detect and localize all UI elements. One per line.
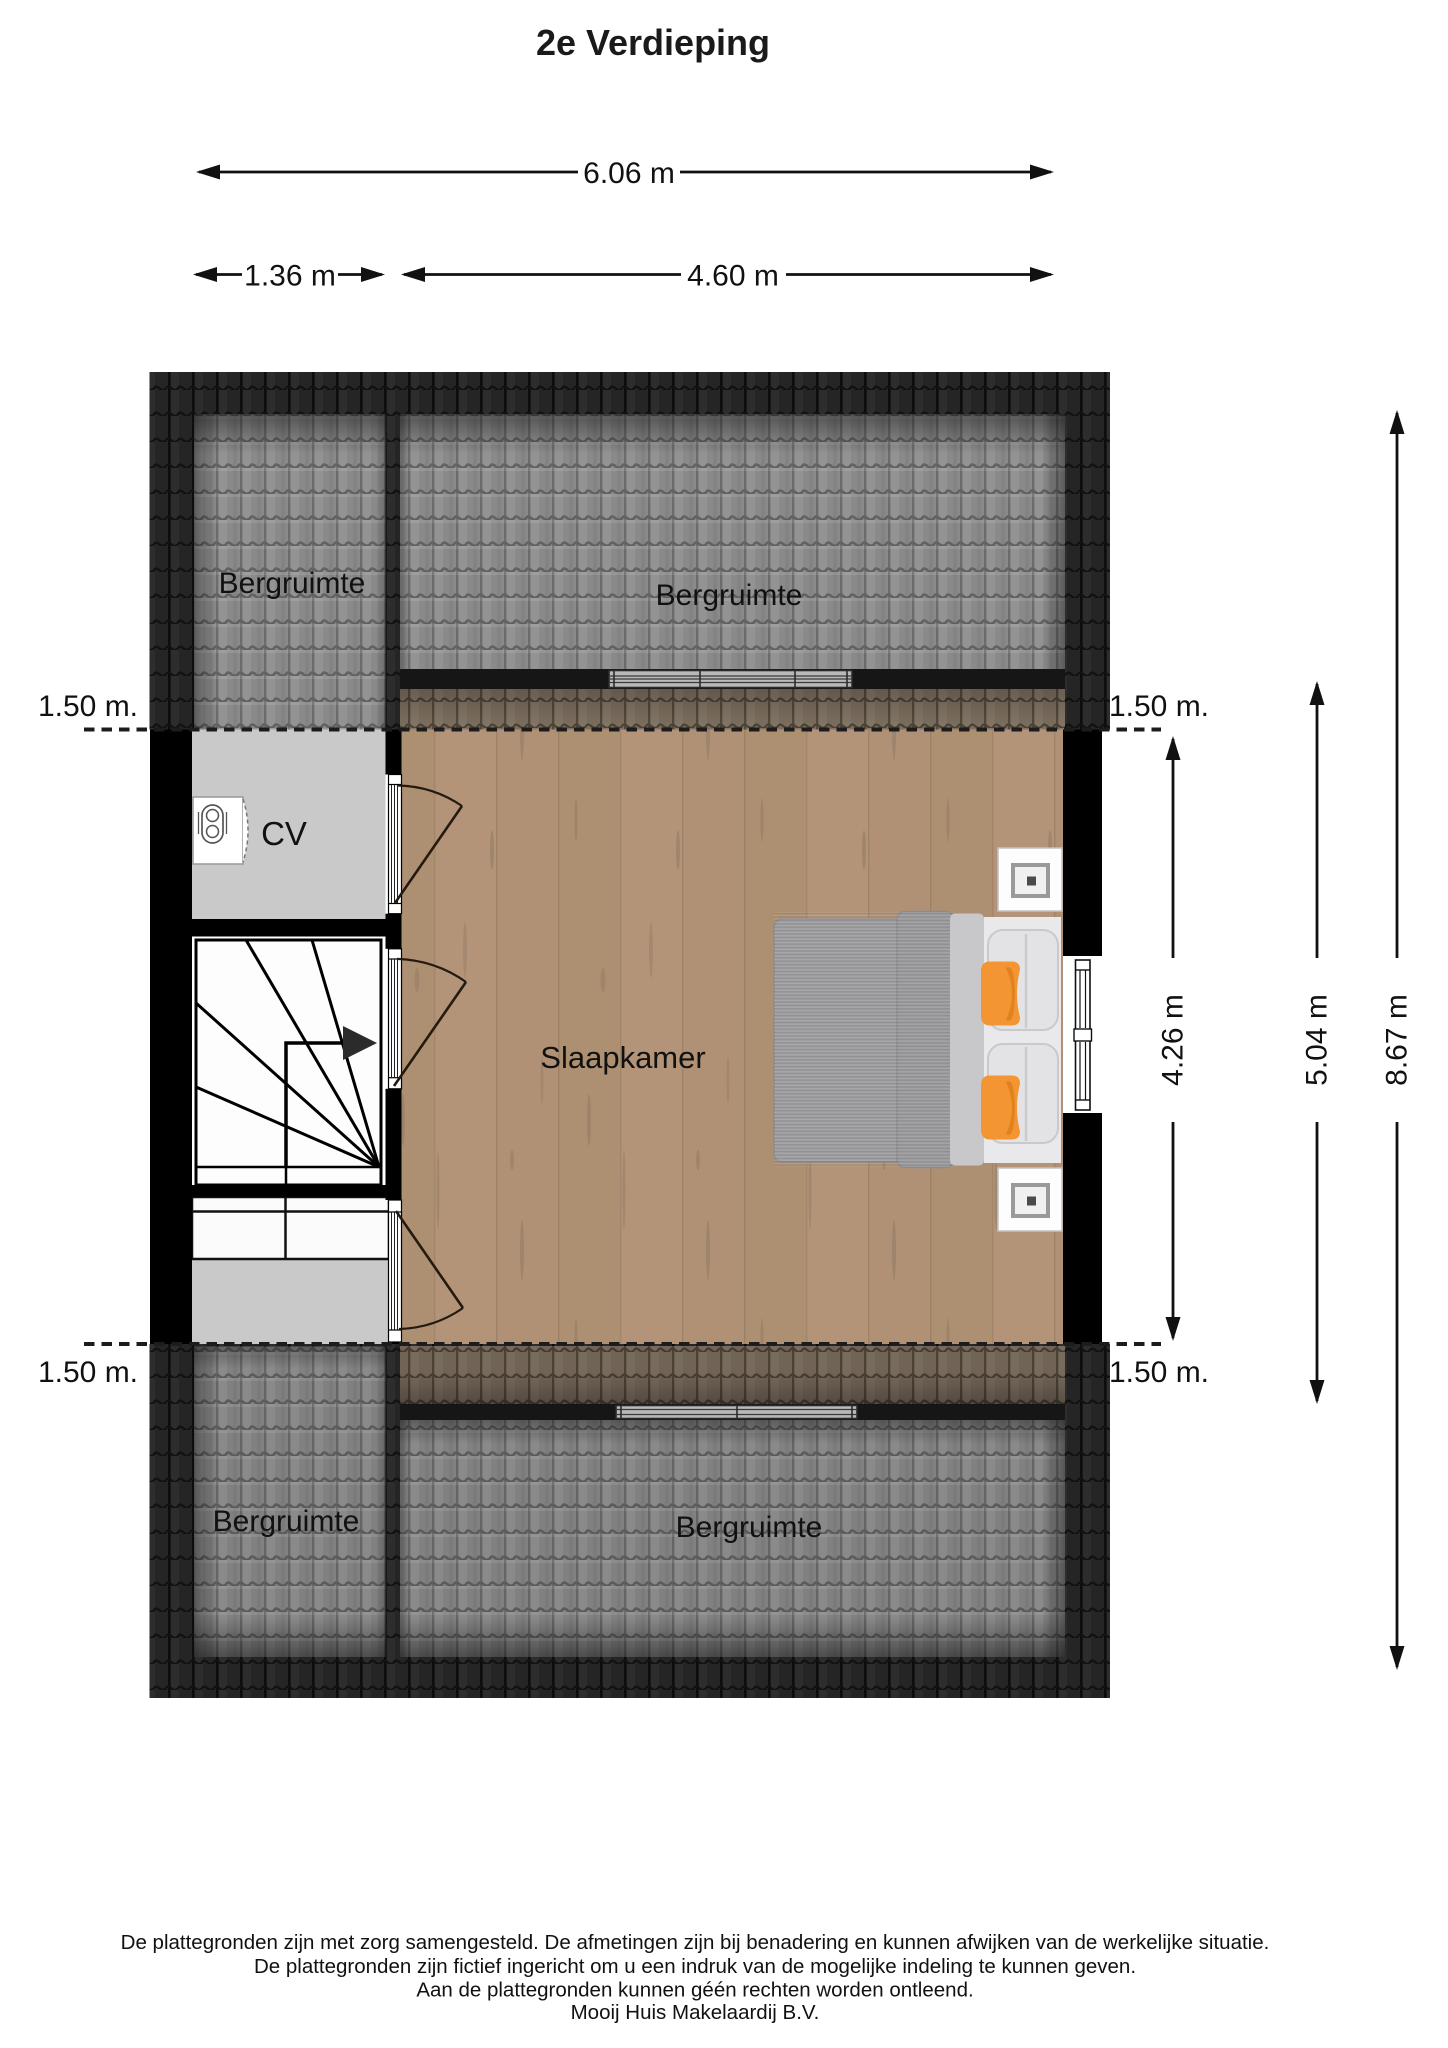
svg-text:Bergruimte: Bergruimte xyxy=(656,579,803,612)
svg-text:Aan de plattegronden kunnen gé: Aan de plattegronden kunnen géén rechten… xyxy=(416,1979,973,2002)
svg-text:4.26 m: 4.26 m xyxy=(1157,994,1190,1086)
svg-text:1.50 m.: 1.50 m. xyxy=(1109,1356,1209,1389)
svg-text:6.06 m: 6.06 m xyxy=(583,157,675,190)
svg-text:4.60 m: 4.60 m xyxy=(687,260,779,293)
svg-text:1.50 m.: 1.50 m. xyxy=(1109,690,1209,723)
svg-text:5.04 m: 5.04 m xyxy=(1301,994,1334,1086)
svg-text:De plattegronden zijn fictief: De plattegronden zijn fictief ingericht … xyxy=(254,1955,1136,1978)
svg-text:1.36 m: 1.36 m xyxy=(244,260,336,293)
svg-text:Bergruimte: Bergruimte xyxy=(676,1511,823,1544)
svg-text:CV: CV xyxy=(261,815,307,852)
svg-text:Slaapkamer: Slaapkamer xyxy=(540,1040,705,1075)
svg-text:8.67 m: 8.67 m xyxy=(1381,994,1414,1086)
svg-text:Bergruimte: Bergruimte xyxy=(213,1505,360,1538)
svg-text:1.50 m.: 1.50 m. xyxy=(38,690,138,723)
svg-text:2e Verdieping: 2e Verdieping xyxy=(536,22,770,63)
svg-text:De plattegronden zijn met zorg: De plattegronden zijn met zorg samengest… xyxy=(121,1931,1270,1954)
svg-text:Mooij Huis Makelaardij B.V.: Mooij Huis Makelaardij B.V. xyxy=(571,2001,820,2024)
svg-text:1.50 m.: 1.50 m. xyxy=(38,1356,138,1389)
svg-text:Bergruimte: Bergruimte xyxy=(219,567,366,600)
